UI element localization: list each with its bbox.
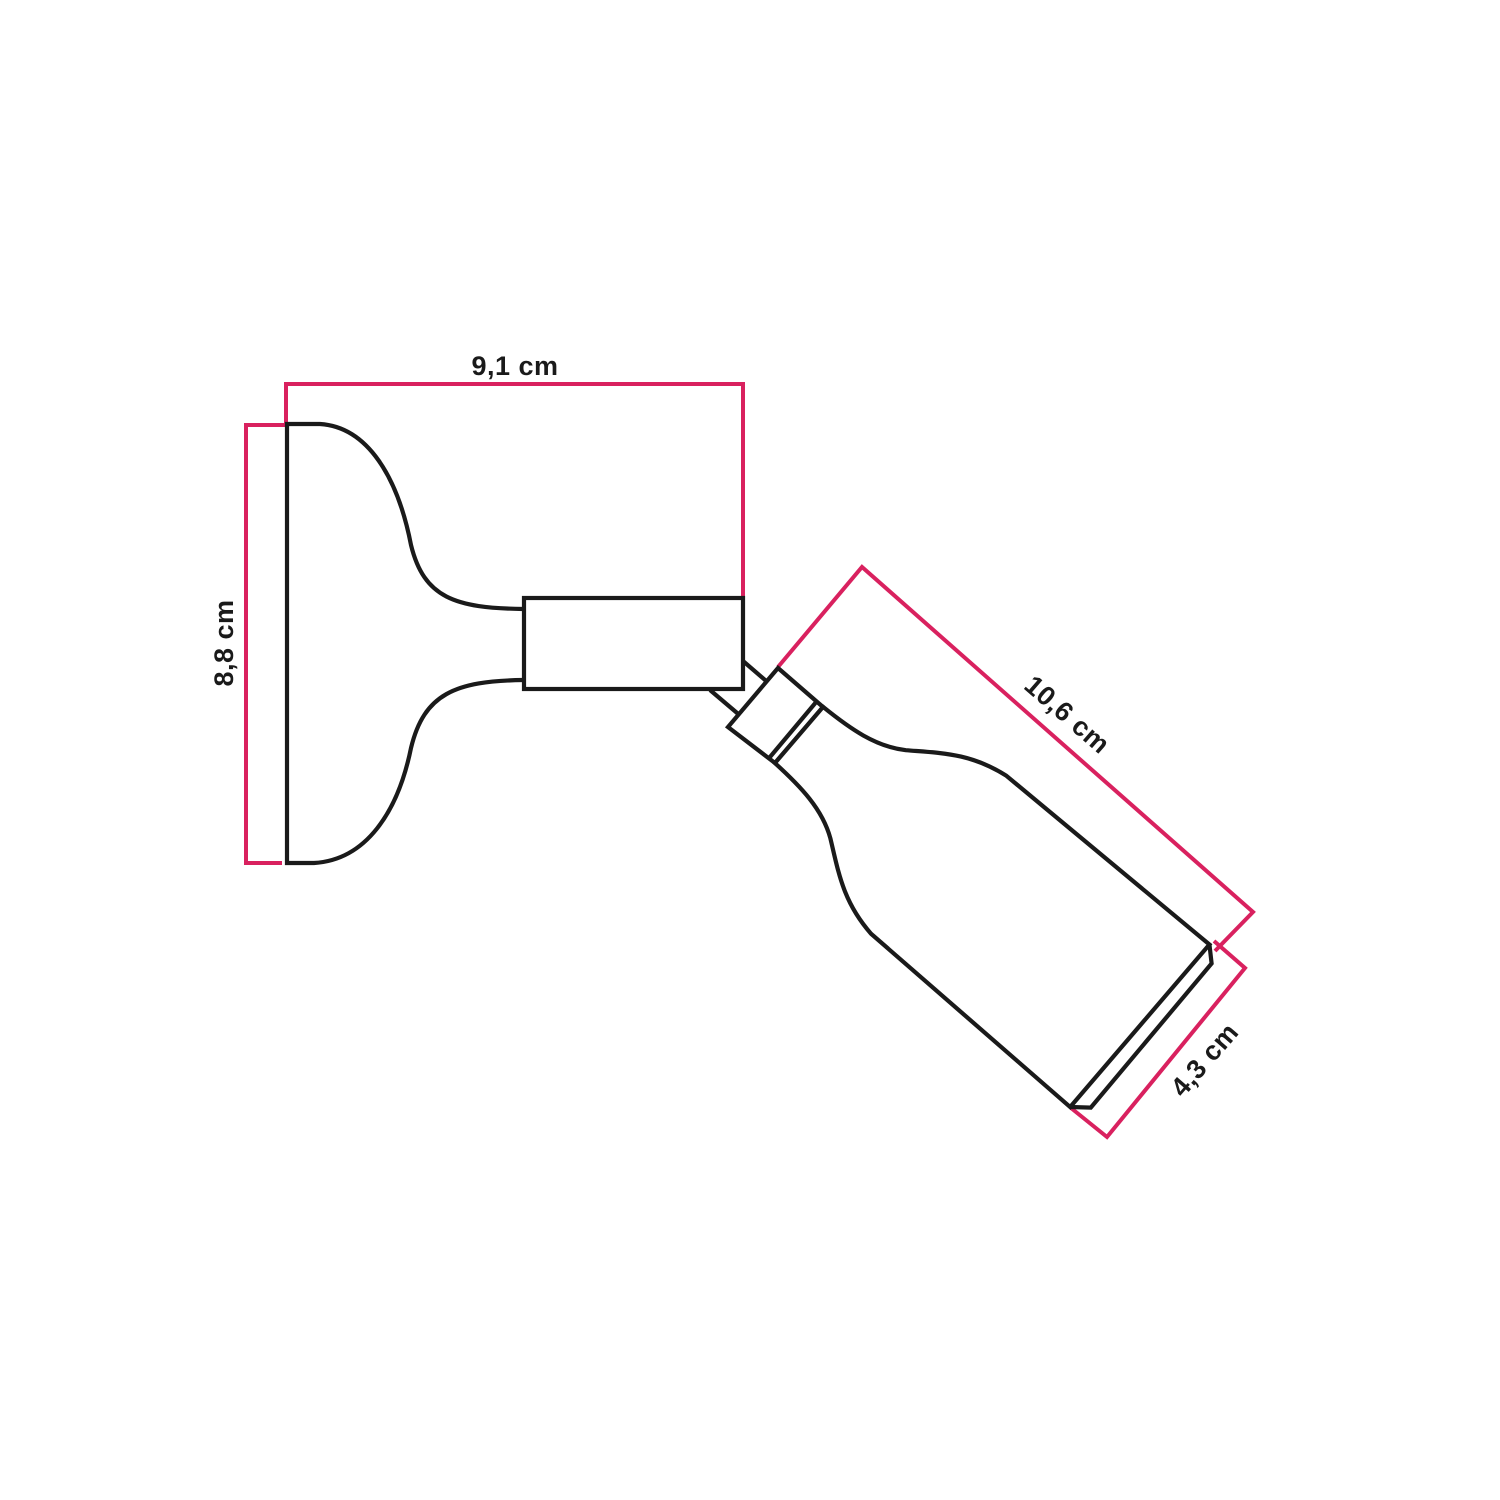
dimension-diagram-page: 9,1 cm 8,8 cm 10,6 cm 4,3 cm <box>0 0 1500 1500</box>
wall-spotlight-dimension-diagram: 9,1 cm 8,8 cm 10,6 cm 4,3 cm <box>0 0 1500 1500</box>
product-outline <box>287 424 1222 1117</box>
height-dimension-label: 8,8 cm <box>209 599 239 686</box>
width-dimension-label: 9,1 cm <box>471 351 558 381</box>
mount-cylinder <box>524 598 743 689</box>
height-dimension-line <box>246 425 286 863</box>
diameter-dimension-label: 4,3 cm <box>1165 1017 1245 1102</box>
width-dimension-line <box>286 384 743 597</box>
wall-cup-outline <box>287 424 523 863</box>
